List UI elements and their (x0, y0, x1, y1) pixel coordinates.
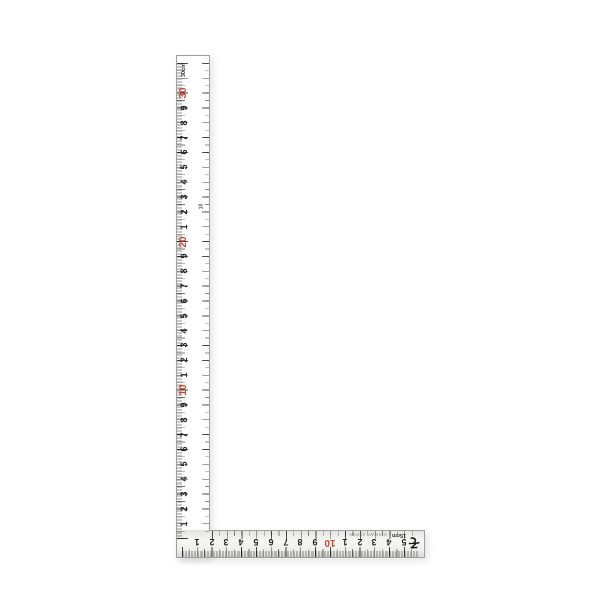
vertical-scale-number: 5 (178, 160, 190, 174)
vertical-scale-number: 30 (178, 86, 190, 100)
vertical-scale-number: 8 (178, 413, 190, 427)
vertical-scale-number: 6 (178, 145, 190, 159)
vertical-scale-number: 7 (178, 131, 190, 145)
vertical-scale-number: 8 (178, 264, 190, 278)
vertical-scale-number: 2 (178, 205, 190, 219)
vertical-scale-number: 7 (178, 279, 190, 293)
vertical-scale-number: 5 (178, 457, 190, 471)
vertical-inner-10-mark: 10 (199, 202, 206, 212)
vertical-scale-number: 3 (178, 190, 190, 204)
horizontal-scale-number: 4 (234, 536, 248, 548)
horizontal-scale-number: 3 (367, 536, 381, 548)
vertical-unit-label: 30cm (180, 60, 188, 80)
horizontal-scale-number: 9 (308, 536, 322, 548)
horizontal-scale-number: 5 (249, 536, 263, 548)
vertical-scale-number: 10 (178, 383, 190, 397)
horizontal-scale-number: 3 (219, 536, 233, 548)
vertical-scale-number: 6 (178, 442, 190, 456)
vertical-scale-number: 2 (178, 353, 190, 367)
horizontal-scale-number: 6 (264, 536, 278, 548)
horizontal-scale-number: 2 (205, 536, 219, 548)
horizontal-scale-number: 1 (190, 536, 204, 548)
product-photo-carpenter-square: 123456789101234567892012345678930 123456… (0, 0, 600, 600)
brand-mark-icon: そ (406, 534, 422, 550)
vertical-scale-number: 8 (178, 116, 190, 130)
maker-small-print: SHINWA JAPAN (349, 531, 387, 537)
vertical-scale-number: 6 (178, 294, 190, 308)
vertical-scale-number: 9 (178, 101, 190, 115)
vertical-scale-number: 4 (178, 324, 190, 338)
horizontal-scale-number: 8 (293, 536, 307, 548)
ruler-edge-inner-right (209, 55, 210, 531)
horizontal-outer-cm-ticks (182, 547, 419, 557)
vertical-scale-number: 20 (178, 235, 190, 249)
vertical-scale-number: 5 (178, 309, 190, 323)
vertical-scale-number: 1 (178, 517, 190, 531)
vertical-scale-number: 2 (178, 502, 190, 516)
vertical-scale-number: 9 (178, 249, 190, 263)
vertical-scale-number: 3 (178, 487, 190, 501)
ruler-edge-top-end (176, 55, 210, 56)
vertical-scale-number: 1 (178, 368, 190, 382)
vertical-inner-cm-ticks (202, 63, 209, 533)
vertical-scale-number: 4 (178, 175, 190, 189)
horizontal-scale-number: 10 (323, 536, 337, 548)
horizontal-scale-number: 1 (338, 536, 352, 548)
vertical-scale-number: 9 (178, 398, 190, 412)
horizontal-scale-number: 7 (279, 536, 293, 548)
vertical-scale-number: 3 (178, 338, 190, 352)
ruler-edge-outer-bottom (176, 557, 425, 558)
horizontal-scale-number: 2 (353, 536, 367, 548)
vertical-scale-number: 4 (178, 472, 190, 486)
vertical-scale-number: 7 (178, 428, 190, 442)
vertical-scale-number: 1 (178, 220, 190, 234)
ruler-edge-right-end (424, 530, 425, 558)
